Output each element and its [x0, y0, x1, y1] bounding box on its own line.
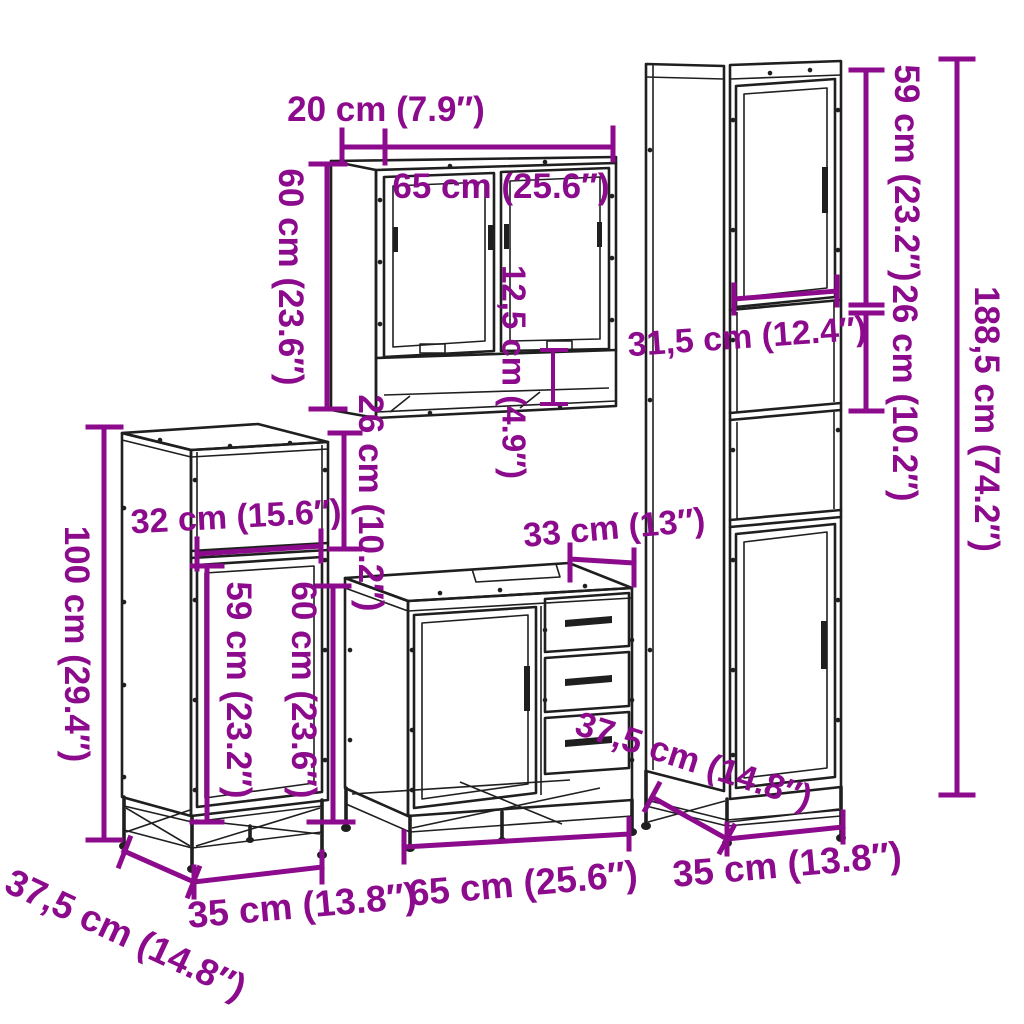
- dimension-label: 33 cm (13″): [521, 501, 706, 555]
- mirror-door-handles: [393, 222, 602, 252]
- mirror-door-left-mirror: [393, 182, 485, 347]
- dimension-label: 188,5 cm (74.2″): [967, 286, 1006, 552]
- dimension-label: 65 cm (25.6″): [407, 853, 639, 914]
- drawer-2-handle: [565, 675, 612, 686]
- tall-door-bottom-handle: [821, 621, 827, 669]
- dimension-label: 59 cm (23.2″): [887, 64, 926, 281]
- dim-side-height: 100 cm (29.4″): [57, 427, 121, 840]
- dimension-label: 100 cm (29.4″): [57, 526, 96, 763]
- dim-mirror-depth-and-width: 20 cm (7.9″) 65 cm (25.6″): [287, 90, 613, 206]
- dimension-label: 60 cm (23.6″): [284, 581, 323, 798]
- dim-tall-door-height: 59 cm (23.2″): [851, 64, 926, 305]
- dimension-label: 12,5 cm (4.9″): [495, 265, 532, 479]
- side-foot-middle: [246, 837, 254, 843]
- drawer-1-handle: [565, 616, 612, 627]
- dim-side-width: 35 cm (13.8″): [186, 852, 418, 936]
- dim-sink-height: 60 cm (23.6″): [284, 581, 353, 822]
- dimension-line: [851, 70, 882, 305]
- sink-cabinet-screws: [350, 586, 632, 790]
- dimension-line: [404, 819, 629, 862]
- sink-cabinet-door-panel: [422, 615, 528, 799]
- tall-door-bottom-panel: [744, 532, 827, 778]
- tall-cabinet-base-rails: [646, 800, 841, 826]
- dimensions: 20 cm (7.9″) 65 cm (25.6″) 60 cm (23.6″)…: [0, 59, 1006, 1008]
- tall-door-bottom: [736, 524, 835, 788]
- tall-cabinet-side-lines: [646, 65, 724, 770]
- dimension-label: 37,5 cm (14.8″): [571, 704, 817, 817]
- dimension-label: 31,5 cm (12.4″): [626, 310, 867, 365]
- side-cabinet-side-panel: [122, 433, 191, 816]
- tall-door-top: [736, 79, 835, 307]
- sink-foot-back: [341, 824, 351, 832]
- diagram-canvas: 20 cm (7.9″) 65 cm (25.6″) 60 cm (23.6″)…: [0, 0, 1024, 1024]
- tall-cabinet-top-rail: [730, 75, 841, 79]
- tall-cabinet: [641, 61, 846, 847]
- side-cabinet-top-face: [122, 424, 328, 450]
- dimension-line: [570, 545, 634, 585]
- furniture-dimension-diagram: 20 cm (7.9″) 65 cm (25.6″) 60 cm (23.6″)…: [0, 0, 1024, 1024]
- dimension-label: 26 cm (10.2″): [885, 284, 924, 501]
- dim-mirror-height: 60 cm (23.6″): [271, 164, 345, 409]
- tall-foot-back: [641, 822, 651, 830]
- mirror-cabinet-top-edge: [331, 157, 616, 163]
- dimension-line: [311, 164, 345, 409]
- dim-side-door-height: 59 cm (23.2″): [192, 566, 258, 822]
- tall-door-top-panel: [744, 88, 827, 297]
- dimension-label: 37,5 cm (14.8″): [0, 861, 252, 1008]
- dimension-label: 32 cm (15.6″): [130, 492, 343, 541]
- dimension-label: 26 cm (10.2″): [351, 394, 390, 611]
- dimension-label: 60 cm (23.6″): [271, 168, 310, 385]
- dim-tall-depth: 37,5 cm (14.8″): [571, 704, 817, 852]
- mirror-cabinet-side-panel: [331, 161, 376, 418]
- sink-door-handle: [524, 666, 530, 711]
- dimension-label: 35 cm (13.8″): [186, 875, 418, 936]
- sink-cabinet-base-rails: [346, 780, 632, 832]
- dimension-label: 59 cm (23.2″): [219, 581, 258, 798]
- dim-sink-width: 65 cm (25.6″): [404, 819, 639, 914]
- sink-cabinet-door: [414, 607, 536, 808]
- dim-mirror-shelf-height: 12,5 cm (4.9″): [495, 265, 566, 479]
- tall-cabinet-side-panel: [646, 64, 724, 791]
- tall-door-top-handle: [822, 167, 828, 213]
- dimension-label: 20 cm (7.9″): [287, 90, 485, 129]
- dim-tall-total-height: 188,5 cm (74.2″): [941, 59, 1006, 795]
- dim-tall-inner-width: 31,5 cm (12.4″): [626, 277, 867, 364]
- dimension-label: 35 cm (13.8″): [671, 834, 903, 895]
- dimension-line: [542, 350, 566, 404]
- dimension-label: 65 cm (25.6″): [392, 167, 609, 206]
- sink-cabinet-side-panel: [345, 578, 408, 816]
- dim-sink-drawer-width: 33 cm (13″): [521, 501, 706, 585]
